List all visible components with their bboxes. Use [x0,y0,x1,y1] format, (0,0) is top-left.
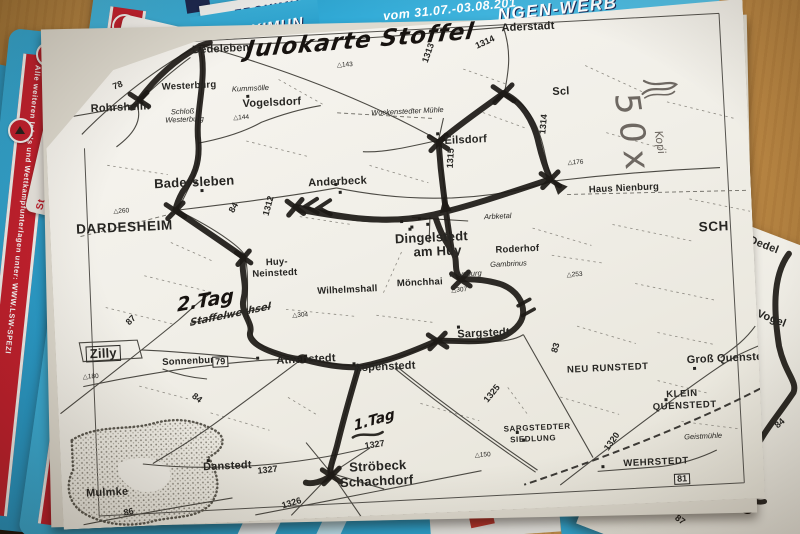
map-label: KLEIN [666,389,698,400]
map-label: Aderstadt [501,21,555,34]
map-label: 1312 [262,195,276,217]
map-label: Wockenstedter Mühle [371,106,444,117]
map-label: SARGSTEDTER [503,423,570,434]
map-label: Geistmühle [684,432,722,441]
map-label: 1314 [474,34,496,51]
map-label: 79 [212,356,228,368]
map-label: Westerburg [162,80,217,92]
map-label: 84 [773,417,786,430]
map-label: △176 [568,160,584,167]
map-label: Mulmke [86,487,129,500]
map-label: 87 [673,513,686,526]
map-label: QUENSTEDT [653,400,717,412]
map-label: 84 [227,201,240,214]
map-label: 1315 [446,148,456,169]
map-label: △304 [292,312,308,319]
map-label: Kummsölle [232,84,269,93]
map-label: 1327 [257,465,278,476]
map-label: △253 [567,272,583,279]
map-label: 86 [123,507,135,518]
map-label: 1325 [482,383,502,404]
map-label: WEHRSTEDT [623,456,689,468]
map-label: Anderbeck [308,176,367,190]
map-label: △144 [233,115,249,122]
map-label: Gambrinus [490,259,527,268]
map-label: DARDESHEIM [76,218,173,236]
map-label: △150 [475,452,491,459]
map-label: SCH [698,219,729,234]
map-label: Rohrsheim [90,101,150,115]
map-sheet-main: DedelebenAderstadtRohrsheimWesterburgSch… [41,0,765,530]
map-label: Westerburg [165,115,204,124]
map-label: Zilly [85,345,121,363]
map-label: Schachdorf [340,473,414,489]
map-label: am Huy [413,243,462,258]
map-label: Athenstedt [276,353,336,367]
map-label: △180 [83,374,99,381]
map-label: 78 [112,80,125,92]
map-labels-layer: DedelebenAderstadtRohrsheimWesterburgSch… [41,0,765,530]
map-label: Eilsdorf [444,134,487,147]
map-label: 1326 [281,496,303,510]
map-label: NEU RUNSTEDT [567,362,649,375]
photo-stage: Alle weiteren Info's und Wettkampfunterl… [0,0,800,534]
map-label: △307 [451,287,467,294]
map-label: Wilhelmshall [317,284,378,296]
map-label: SIEDLUNG [510,434,556,444]
map-label: Sargstedt [457,327,510,340]
map-label: Roderhof [495,244,539,255]
map-label: △143 [337,62,353,69]
map-label: Danstedt [203,460,252,473]
map-label: Huy- [266,257,288,267]
map-label: 83 [550,342,561,354]
map-label: Aspenstedt [354,361,416,375]
map-label: Scl [552,86,570,98]
map-label: 87 [124,314,137,327]
map-label: 1320 [603,431,622,453]
map-label: Mönchhai [397,277,443,289]
map-label: Vogelsdorf [242,96,301,110]
map-label: Neinstedt [252,268,297,280]
map-label: △260 [113,208,129,215]
map-label: 81 [674,473,690,485]
map-label: Vogel [755,309,787,330]
map-label: Badersleben [154,174,235,191]
map-label: Ströbeck [349,458,407,474]
map-label: Huysburg [449,269,481,278]
map-label: 1327 [364,439,385,451]
map-label: 84 [190,392,203,405]
map-label: 1314 [538,114,549,135]
logo-badge-icon [8,118,33,143]
map-label: Dedeleben [192,43,250,57]
map-label: Arbketal [484,212,512,221]
